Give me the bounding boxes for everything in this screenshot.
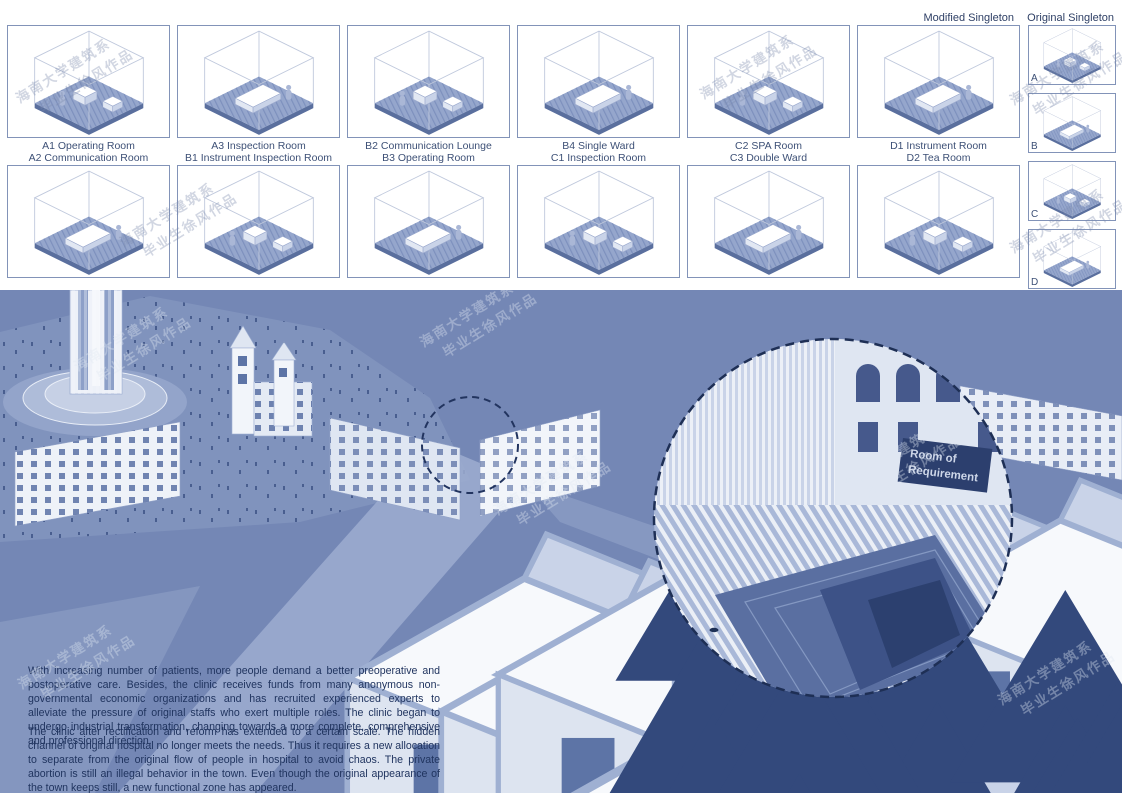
room-column-6: D1 Instrument Room D2 Tea Room: [857, 25, 1020, 278]
room-column-5: C2 SPA Room C3 Double Ward: [687, 25, 850, 278]
town-illustration: Room of Requirement: [0, 290, 1122, 793]
original-singleton-panel: A B C D: [1028, 25, 1116, 297]
room-diagram-c1: [517, 165, 680, 278]
singleton-box-d: D: [1028, 229, 1116, 289]
room-diagram-c3: [687, 165, 850, 278]
room-diagram-d1: [857, 25, 1020, 138]
room-labels-6: D1 Instrument Room D2 Tea Room: [857, 138, 1020, 165]
modified-singleton-heading: Modified Singleton: [923, 12, 1014, 24]
room-labels-1: A1 Operating Room A2 Communication Room: [7, 138, 170, 165]
description-paragraph-2: The clinic after rectification and refor…: [28, 725, 440, 793]
room-label-a3: A3 Inspection Room: [177, 140, 340, 152]
room-labels-2: A3 Inspection Room B1 Instrument Inspect…: [177, 138, 340, 165]
room-column-4: B4 Single Ward C1 Inspection Room: [517, 25, 680, 278]
diagram-panel: Modified Singleton Original Singleton A1…: [0, 0, 1122, 290]
room-label-a2: A2 Communication Room: [7, 152, 170, 164]
room-labels-5: C2 SPA Room C3 Double Ward: [687, 138, 850, 165]
singleton-label-a: A: [1031, 73, 1038, 84]
room-diagram-d2: [857, 165, 1020, 278]
room-diagram-a3: [177, 25, 340, 138]
room-label-b4: B4 Single Ward: [517, 140, 680, 152]
singleton-label-d: D: [1031, 277, 1038, 288]
room-diagram-a2: [7, 165, 170, 278]
singleton-label-b: B: [1031, 141, 1038, 152]
room-label-b2: B2 Communication Lounge: [347, 140, 510, 152]
room-label-d1: D1 Instrument Room: [857, 140, 1020, 152]
room-label-c3: C3 Double Ward: [687, 152, 850, 164]
room-diagram-c2: [687, 25, 850, 138]
room-column-1: A1 Operating Room A2 Communication Room: [7, 25, 170, 278]
room-label-c2: C2 SPA Room: [687, 140, 850, 152]
room-label-b1: B1 Instrument Inspection Room: [177, 152, 340, 164]
room-column-3: B2 Communication Lounge B3 Operating Roo…: [347, 25, 510, 278]
room-diagram-b3: [347, 165, 510, 278]
original-singleton-heading: Original Singleton: [1027, 12, 1114, 24]
room-column-2: A3 Inspection Room B1 Instrument Inspect…: [177, 25, 340, 278]
room-labels-3: B2 Communication Lounge B3 Operating Roo…: [347, 138, 510, 165]
room-label-a1: A1 Operating Room: [7, 140, 170, 152]
room-label-c1: C1 Inspection Room: [517, 152, 680, 164]
singleton-label-c: C: [1031, 209, 1038, 220]
room-diagram-b1: [177, 165, 340, 278]
room-diagram-b2: [347, 25, 510, 138]
room-label-b3: B3 Operating Room: [347, 152, 510, 164]
room-diagram-grid: A1 Operating Room A2 Communication Room …: [7, 25, 1020, 278]
room-diagram-a1: [7, 25, 170, 138]
singleton-box-c: C: [1028, 161, 1116, 221]
room-label-d2: D2 Tea Room: [857, 152, 1020, 164]
singleton-box-a: A: [1028, 25, 1116, 85]
singleton-box-b: B: [1028, 93, 1116, 153]
room-diagram-b4: [517, 25, 680, 138]
room-labels-4: B4 Single Ward C1 Inspection Room: [517, 138, 680, 165]
